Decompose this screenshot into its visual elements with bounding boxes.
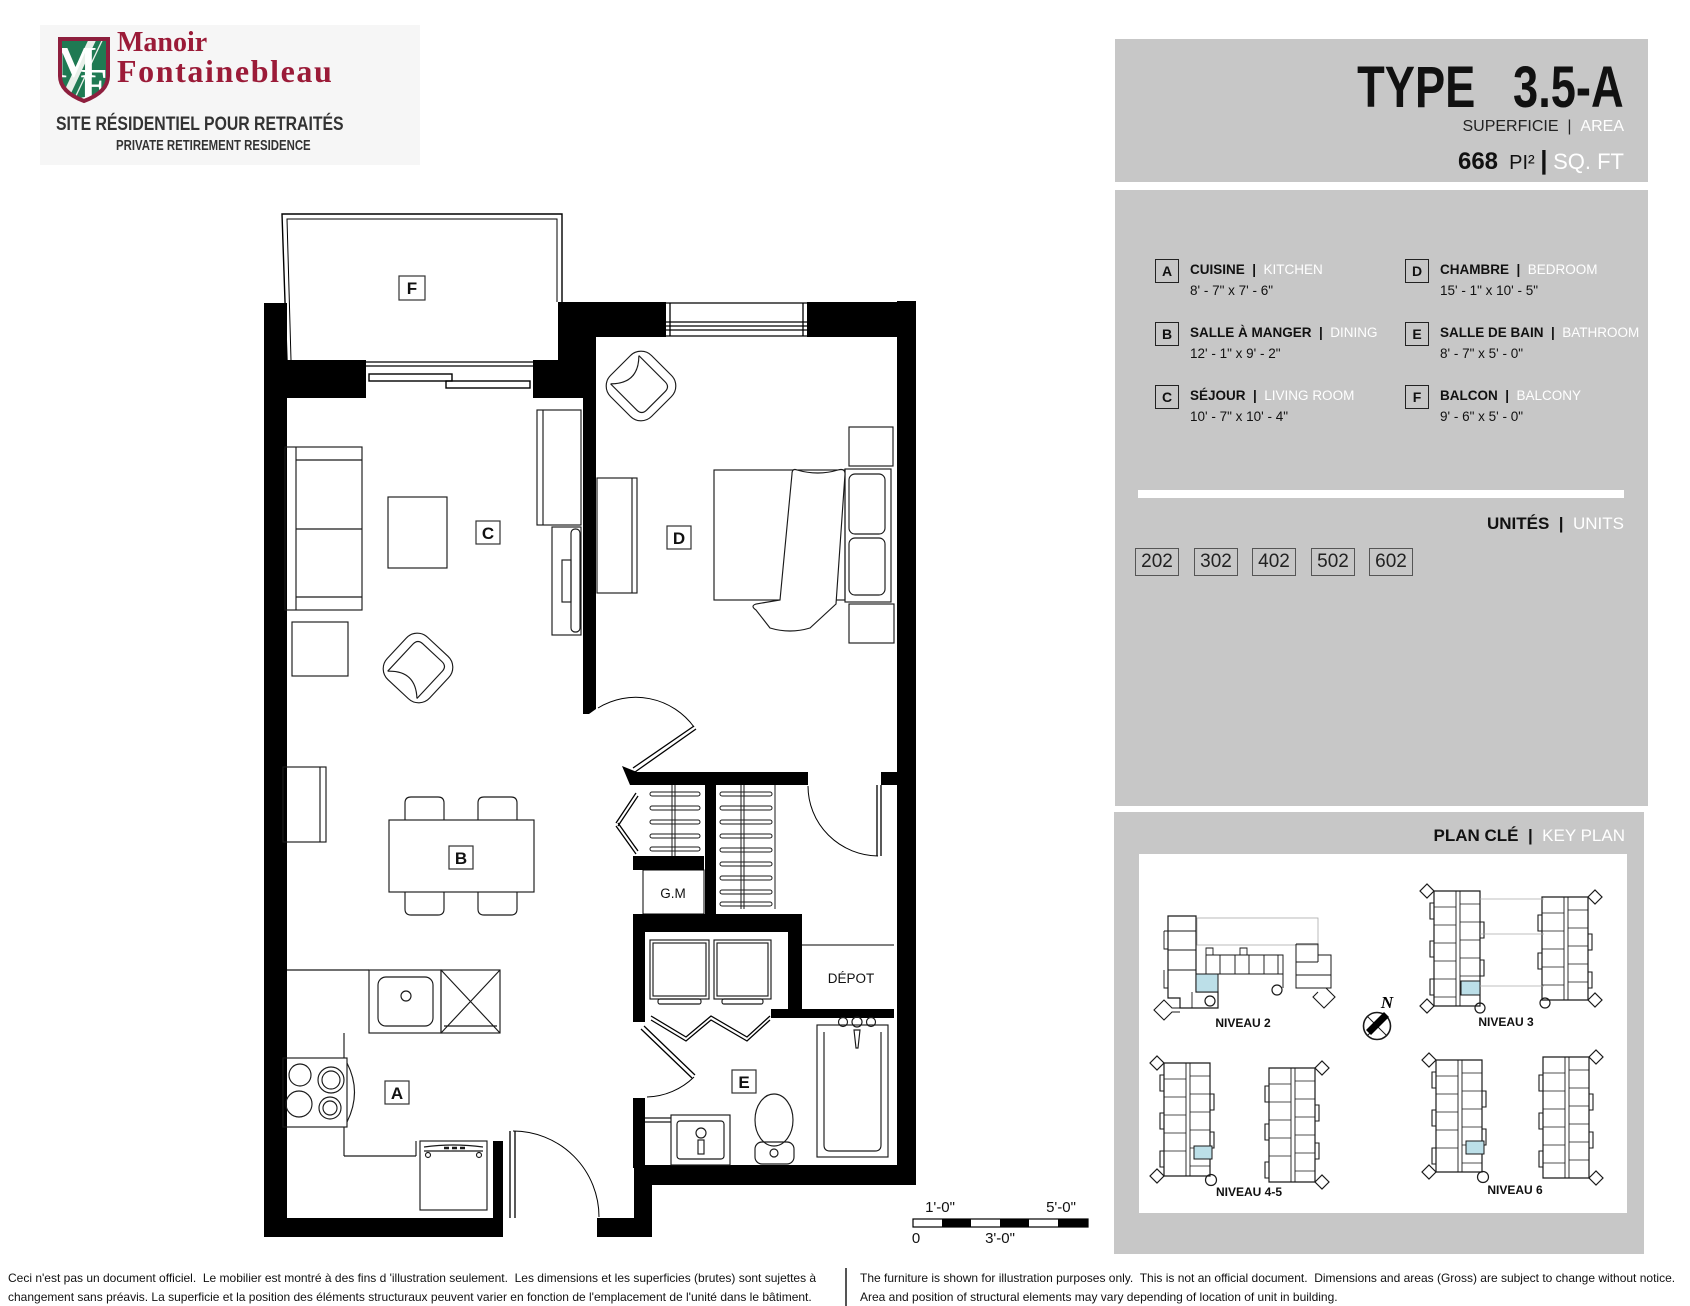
svg-text:NIVEAU 2: NIVEAU 2 [1215,1016,1271,1030]
svg-text:DÉPOT: DÉPOT [828,971,875,986]
svg-text:NIVEAU 3: NIVEAU 3 [1478,1015,1534,1029]
svg-text:NIVEAU 4-5: NIVEAU 4-5 [1216,1185,1282,1199]
svg-text:B: B [455,849,467,868]
svg-text:C: C [482,524,494,543]
svg-text:5'-0": 5'-0" [1046,1199,1076,1216]
svg-text:F: F [407,279,417,298]
svg-text:1'-0": 1'-0" [925,1199,955,1216]
svg-text:A: A [391,1084,403,1103]
svg-text:3'-0": 3'-0" [985,1230,1015,1247]
svg-text:G.M: G.M [660,886,686,901]
svg-text:D: D [673,529,685,548]
svg-text:N: N [1380,993,1394,1012]
svg-text:NIVEAU 6: NIVEAU 6 [1487,1183,1543,1197]
svg-text:E: E [738,1073,749,1092]
svg-text:0: 0 [912,1230,920,1247]
